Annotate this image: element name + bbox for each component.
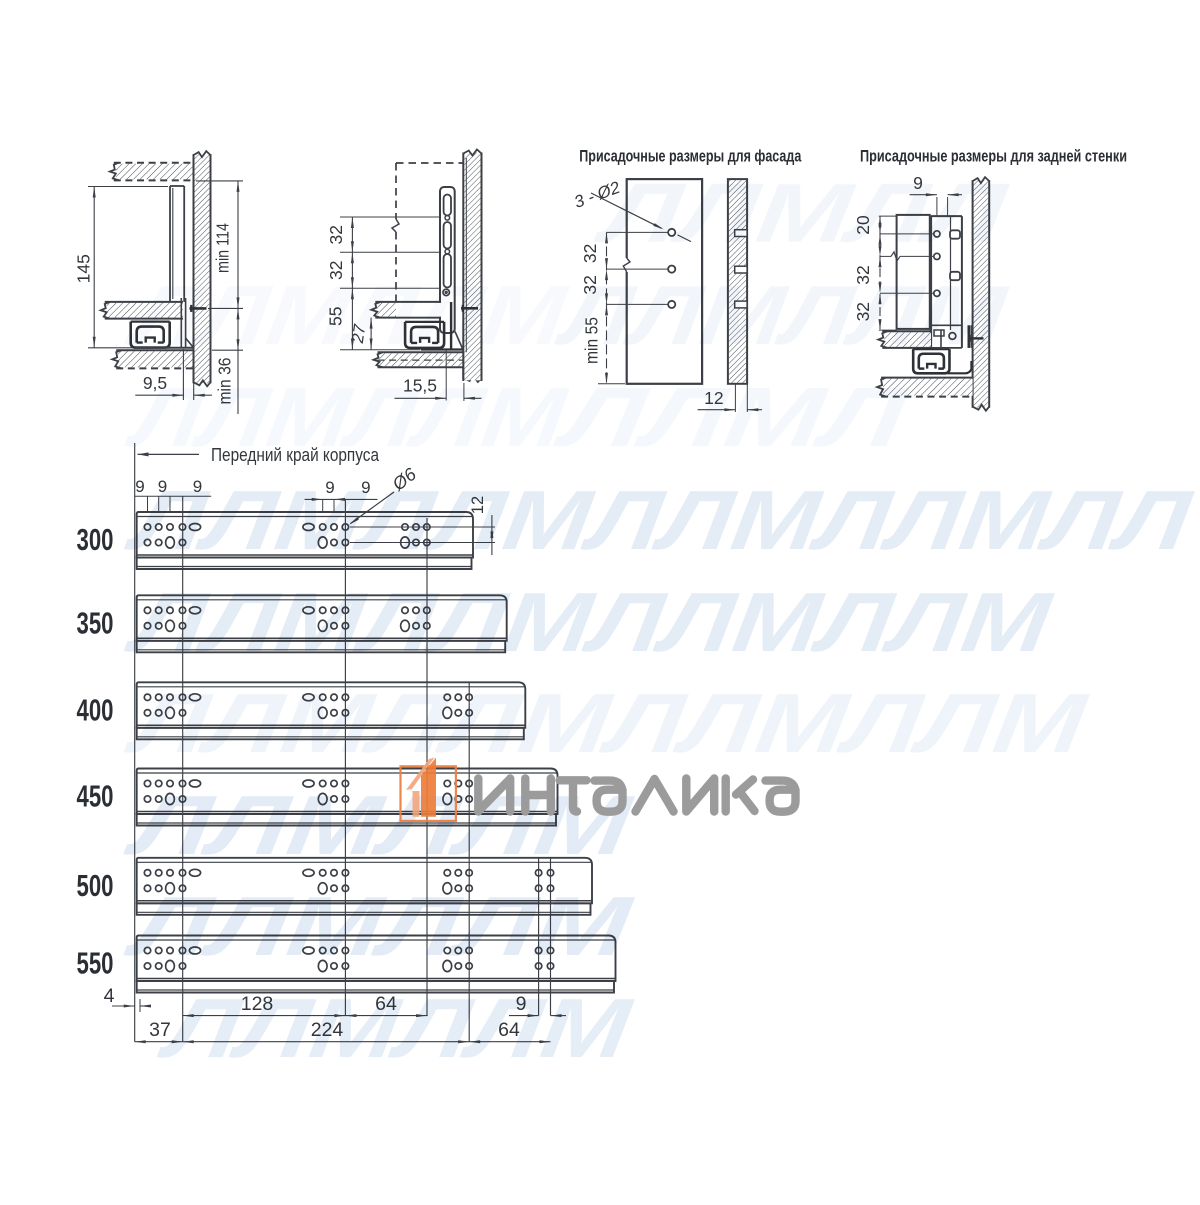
svg-text:ЛЛМЛЛМЛЛМЛЛМ: ЛЛМЛЛМЛЛМЛЛМ bbox=[120, 676, 1093, 770]
svg-text:ЛЛМЛЛМ: ЛЛМЛЛМ bbox=[121, 268, 573, 362]
svg-text:32: 32 bbox=[580, 244, 600, 263]
svg-text:ЛЛМЛЛМ: ЛЛМЛЛМ bbox=[120, 778, 638, 872]
svg-text:32: 32 bbox=[326, 225, 346, 244]
svg-text:ЛЛМЛЛМ: ЛЛМЛЛМ bbox=[121, 370, 573, 464]
svg-text:300: 300 bbox=[77, 523, 114, 557]
svg-text:145: 145 bbox=[74, 254, 94, 283]
svg-text:ЛЛМЛЛ: ЛЛМЛЛ bbox=[590, 166, 1014, 260]
svg-text:Присадочные размеры для фасада: Присадочные размеры для фасада bbox=[579, 148, 802, 166]
svg-text:ЛЛМЛ: ЛЛМЛ bbox=[549, 370, 913, 464]
svg-text:450: 450 bbox=[77, 780, 114, 814]
svg-text:ЛЛМЛЛМ: ЛЛМЛЛМ bbox=[120, 879, 638, 973]
svg-text:ЛЛМЛЛМЛЛМЛЛМ: ЛЛМЛЛМЛЛМЛЛМ bbox=[120, 575, 1058, 669]
svg-text:ЛЛМЛЛМ: ЛЛМЛЛМ bbox=[550, 268, 1012, 362]
svg-text:550: 550 bbox=[77, 947, 114, 981]
svg-text:Присадочные размеры для задней: Присадочные размеры для задней стенки bbox=[860, 148, 1127, 166]
svg-text:ЛЛМЛЛМЛЛМЛЛМЛЛ: ЛЛМЛЛМЛЛМЛЛМЛЛ bbox=[120, 473, 1198, 567]
svg-text:350: 350 bbox=[77, 606, 114, 640]
svg-text:500: 500 bbox=[77, 869, 114, 903]
svg-text:min 114: min 114 bbox=[213, 223, 233, 273]
svg-text:4: 4 bbox=[104, 985, 115, 1007]
svg-text:400: 400 bbox=[77, 693, 114, 727]
svg-text:ЛЛМЛЛМ: ЛЛМЛЛМ bbox=[153, 981, 638, 1075]
